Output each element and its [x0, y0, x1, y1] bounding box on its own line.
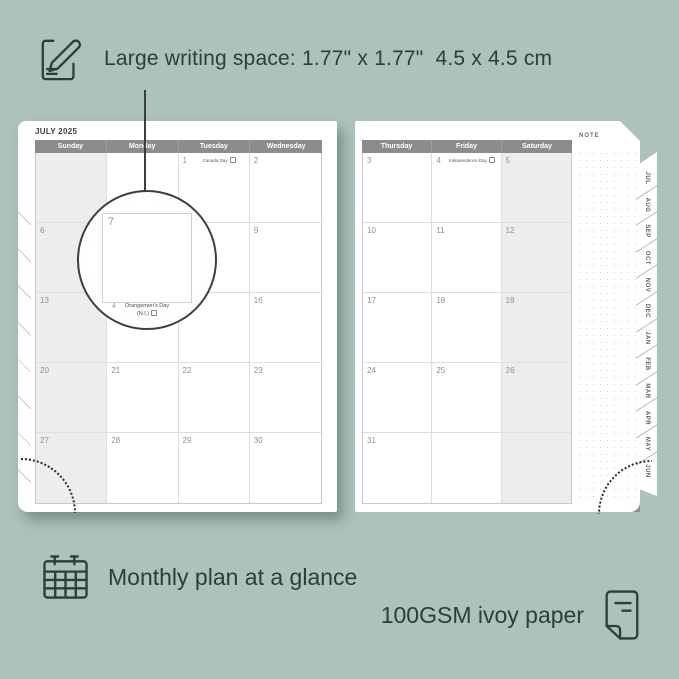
day-number: 22: [183, 366, 192, 375]
month-tab-label: NOV: [644, 277, 650, 292]
day-number: 26: [506, 366, 515, 375]
day-header: Wednesday: [250, 140, 322, 153]
note-dot-grid: [576, 150, 637, 502]
day-cell: [502, 433, 571, 503]
day-number: 6: [40, 226, 44, 235]
month-tab-label: JUL: [644, 172, 650, 185]
day-number: 19: [506, 296, 515, 305]
holiday-label: Canada Day: [192, 157, 247, 163]
calendar-grid-right: ThursdayFridaySaturday 34Independence Da…: [362, 140, 572, 504]
day-number: 11: [436, 226, 444, 235]
day-number: 4: [436, 156, 440, 165]
day-cell: [432, 433, 501, 503]
magnified-day-number: 7: [108, 216, 114, 228]
day-cell: 17: [363, 293, 432, 363]
day-header: Saturday: [502, 140, 572, 153]
day-cell: 9: [250, 223, 321, 293]
top-annotation: Large writing space: 1.77" x 1.77" 4.5 x…: [38, 34, 552, 84]
bottom-left-text: Monthly plan at a glance: [108, 564, 357, 591]
day-number: 30: [254, 436, 263, 445]
day-number: 3: [367, 156, 371, 165]
product-image: Large writing space: 1.77" x 1.77" 4.5 x…: [0, 0, 679, 679]
day-number: 27: [40, 436, 49, 445]
month-tab-label: MAY: [644, 437, 650, 451]
note-label: NOTE: [579, 133, 600, 139]
day-number: 17: [367, 296, 376, 305]
month-title: JULY 2025: [35, 127, 77, 136]
day-cell: 23: [250, 363, 321, 433]
day-cell: 26: [502, 363, 571, 433]
bottom-left-annotation: Monthly plan at a glance: [42, 554, 357, 601]
flag-badge-icon: [151, 310, 157, 316]
day-number: 20: [40, 366, 49, 375]
month-tab-mar: MAR: [636, 378, 657, 405]
month-tab-label: JAN: [644, 331, 650, 345]
day-cell: 4Independence Day: [432, 153, 501, 223]
month-tab-label: DEC: [644, 304, 650, 318]
day-number: 10: [367, 226, 376, 235]
day-number: 5: [506, 156, 510, 165]
day-cell: 30: [250, 433, 321, 503]
day-cell: 10: [363, 223, 432, 293]
day-number: 13: [40, 296, 49, 305]
holiday-line1: Orangemen's Day: [125, 303, 169, 309]
month-tab-label: MAR: [644, 383, 650, 398]
day-number: 12: [506, 226, 515, 235]
magnified-holiday-label: Orangemen's Day (N.I.): [102, 303, 192, 319]
day-cell: 18: [432, 293, 501, 363]
day-cell: 2: [250, 153, 321, 223]
bottom-right-text: 100GSM ivoy paper: [381, 602, 584, 629]
day-header: Sunday: [35, 140, 107, 153]
calendar-cells-right: 34Independence Day510111217181924252631: [362, 153, 572, 504]
holiday-label: Independence Day: [445, 157, 498, 163]
day-number: 28: [111, 436, 120, 445]
day-number: 1: [183, 156, 187, 165]
holiday-line2: (N.I.): [137, 311, 149, 317]
day-cell: 28: [107, 433, 178, 503]
day-cell: 25: [432, 363, 501, 433]
day-cell: 31: [363, 433, 432, 503]
calendar-icon: [42, 554, 89, 601]
month-tabs-strip: JULAUGSEPOCTNOVDECJANFEBMARAPRMAYJUN: [636, 150, 657, 498]
month-tab-label: OCT: [644, 251, 650, 265]
day-number: 2: [254, 156, 258, 165]
day-cell: 12: [502, 223, 571, 293]
month-tab-label: FEB: [644, 358, 650, 372]
day-number: 24: [367, 366, 376, 375]
day-cell: 21: [107, 363, 178, 433]
day-cell: 5: [502, 153, 571, 223]
day-number: 31: [367, 436, 376, 445]
pencil-note-icon: [38, 34, 84, 84]
day-cell: 24: [363, 363, 432, 433]
day-cell: 20: [36, 363, 107, 433]
day-number: 9: [254, 226, 258, 235]
month-tab-oct: OCT: [636, 245, 657, 272]
day-cell: 3: [363, 153, 432, 223]
magnified-day-cell: [102, 213, 192, 303]
top-annotation-text: Large writing space: 1.77" x 1.77" 4.5 x…: [104, 47, 552, 71]
day-cell: 22: [179, 363, 250, 433]
day-header: Friday: [432, 140, 502, 153]
day-number: 25: [436, 366, 445, 375]
day-number: 29: [183, 436, 192, 445]
day-number: 23: [254, 366, 263, 375]
callout-line: [144, 90, 146, 191]
day-header: Thursday: [362, 140, 432, 153]
planner-right-page: ThursdayFridaySaturday 34Independence Da…: [355, 121, 640, 512]
month-tab-label: AUG: [644, 197, 650, 212]
day-header: Monday: [107, 140, 179, 153]
day-number: 18: [436, 296, 445, 305]
day-header: Tuesday: [179, 140, 251, 153]
day-number: 16: [254, 296, 263, 305]
month-tab-label: SEP: [644, 225, 650, 239]
day-cell: 11: [432, 223, 501, 293]
magnifier-circle: 7 4 Orangemen's Day (N.I.): [77, 190, 217, 330]
weekday-header-row: SundayMondayTuesdayWednesday: [35, 140, 322, 153]
flag-badge-icon: [489, 157, 495, 163]
day-cell: 19: [502, 293, 571, 363]
weekday-header-row: ThursdayFridaySaturday: [362, 140, 572, 153]
flag-badge-icon: [230, 157, 236, 163]
month-tab-label: APR: [644, 411, 650, 425]
day-number: 21: [111, 366, 120, 375]
day-cell: 29: [179, 433, 250, 503]
day-cell: 16: [250, 293, 321, 363]
paper-sheet-icon: [599, 588, 643, 642]
bottom-right-annotation: 100GSM ivoy paper: [381, 588, 643, 642]
